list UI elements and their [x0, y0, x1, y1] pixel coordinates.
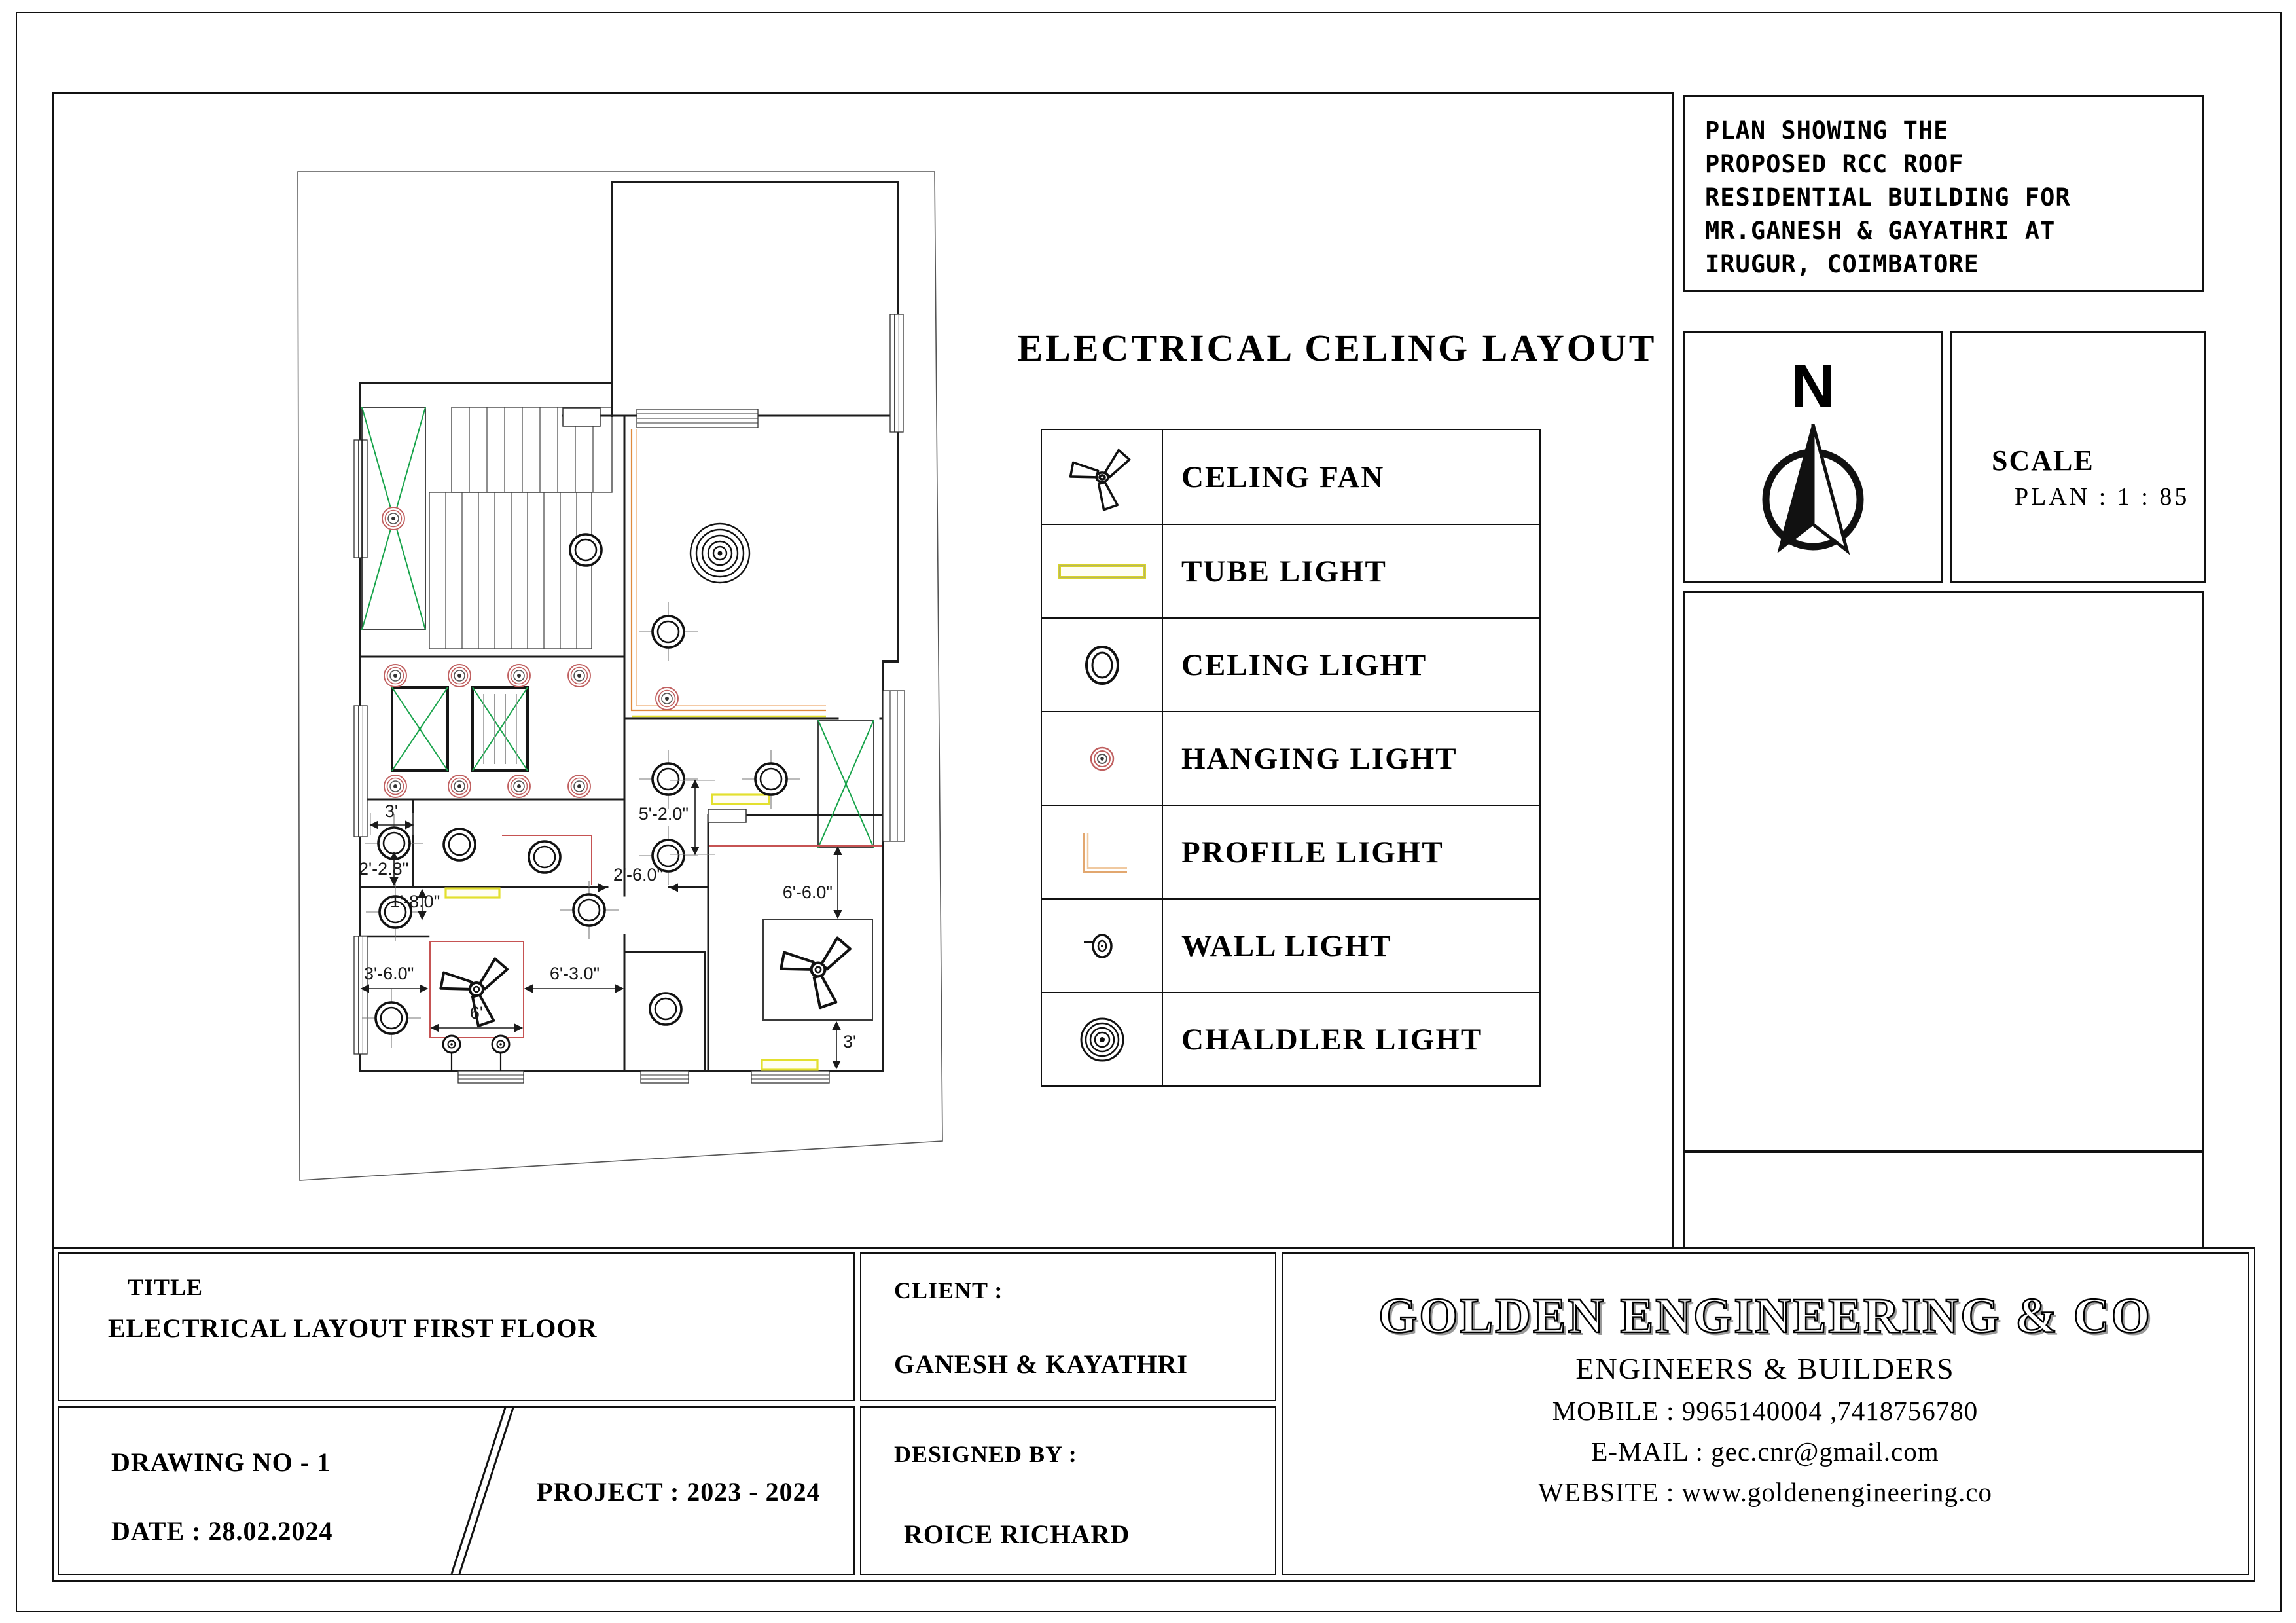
- designed-by-cell: DESIGNED BY : ROICE RICHARD: [860, 1406, 1276, 1575]
- company-subtitle: ENGINEERS & BUILDERS: [1283, 1351, 2248, 1386]
- scale-value: PLAN : 1 : 85: [2015, 483, 2204, 511]
- legend-label: CHALDLER LIGHT: [1163, 992, 1539, 1085]
- title-label: TITLE: [128, 1273, 203, 1301]
- client-label: CLIENT :: [894, 1277, 1003, 1304]
- tube-light-icon: [1042, 524, 1163, 617]
- legend-label: CELING LIGHT: [1163, 617, 1539, 711]
- drawing-info-cell: DRAWING NO - 1 DATE : 28.02.2024 PROJECT…: [58, 1406, 855, 1575]
- legend-label: PROFILE LIGHT: [1163, 805, 1539, 898]
- drawing-sheet: 3'2'-2.8"1'-8.0"3'-6.0"6'-3.0"6'5'-2.0"2…: [0, 0, 2296, 1623]
- empty-panel-large: [1683, 591, 2204, 1152]
- designer-name: ROICE RICHARD: [904, 1519, 1130, 1550]
- ceiling-fan-icon: [1042, 430, 1163, 524]
- sheet-title: ELECTRICAL LAYOUT FIRST FLOOR: [108, 1313, 597, 1343]
- company-website: WEBSITE : www.goldenengineering.co: [1283, 1476, 2248, 1508]
- company-mobile: MOBILE : 9965140004 ,7418756780: [1283, 1395, 2248, 1427]
- north-compass-icon: [1741, 414, 1885, 572]
- project-description-box: PLAN SHOWING THE PROPOSED RCC ROOF RESID…: [1683, 95, 2204, 292]
- company-cell: GOLDEN ENGINEERING & CO ENGINEERS & BUIL…: [1282, 1252, 2249, 1575]
- legend-label: TUBE LIGHT: [1163, 524, 1539, 617]
- empty-panel-small: [1683, 1151, 2204, 1251]
- legend-label: CELING FAN: [1163, 430, 1539, 524]
- project-year: PROJECT : 2023 - 2024: [537, 1476, 821, 1507]
- drawing-title: ELECTRICAL CELING LAYOUT: [1013, 326, 1661, 370]
- chandelier-light-icon: [1042, 992, 1163, 1085]
- title-cell: TITLE ELECTRICAL LAYOUT FIRST FLOOR: [58, 1252, 855, 1401]
- legend-label: WALL LIGHT: [1163, 898, 1539, 992]
- company-email: E-MAIL : gec.cnr@gmail.com: [1283, 1436, 2248, 1467]
- legend-label: HANGING LIGHT: [1163, 711, 1539, 805]
- project-description: PLAN SHOWING THE PROPOSED RCC ROOF RESID…: [1705, 114, 2202, 281]
- profile-light-icon: [1042, 805, 1163, 898]
- title-block: TITLE ELECTRICAL LAYOUT FIRST FLOOR DRAW…: [52, 1247, 2255, 1582]
- wall-light-icon: [1042, 898, 1163, 992]
- client-cell: CLIENT : GANESH & KAYATHRI: [860, 1252, 1276, 1401]
- scale-title: SCALE: [1992, 444, 2204, 477]
- north-label: N: [1685, 352, 1941, 421]
- hanging-light-icon: [1042, 711, 1163, 805]
- ceiling-light-icon: [1042, 617, 1163, 711]
- symbol-legend: CELING FAN TUBE LIGHT CELING LIGHT HANGI…: [1041, 429, 1541, 1087]
- designed-by-label: DESIGNED BY :: [894, 1440, 1077, 1468]
- north-arrow-box: N: [1683, 331, 1943, 583]
- scale-box: SCALE PLAN : 1 : 85: [1950, 331, 2206, 583]
- company-name: GOLDEN ENGINEERING & CO: [1283, 1288, 2248, 1345]
- client-name: GANESH & KAYATHRI: [894, 1349, 1188, 1379]
